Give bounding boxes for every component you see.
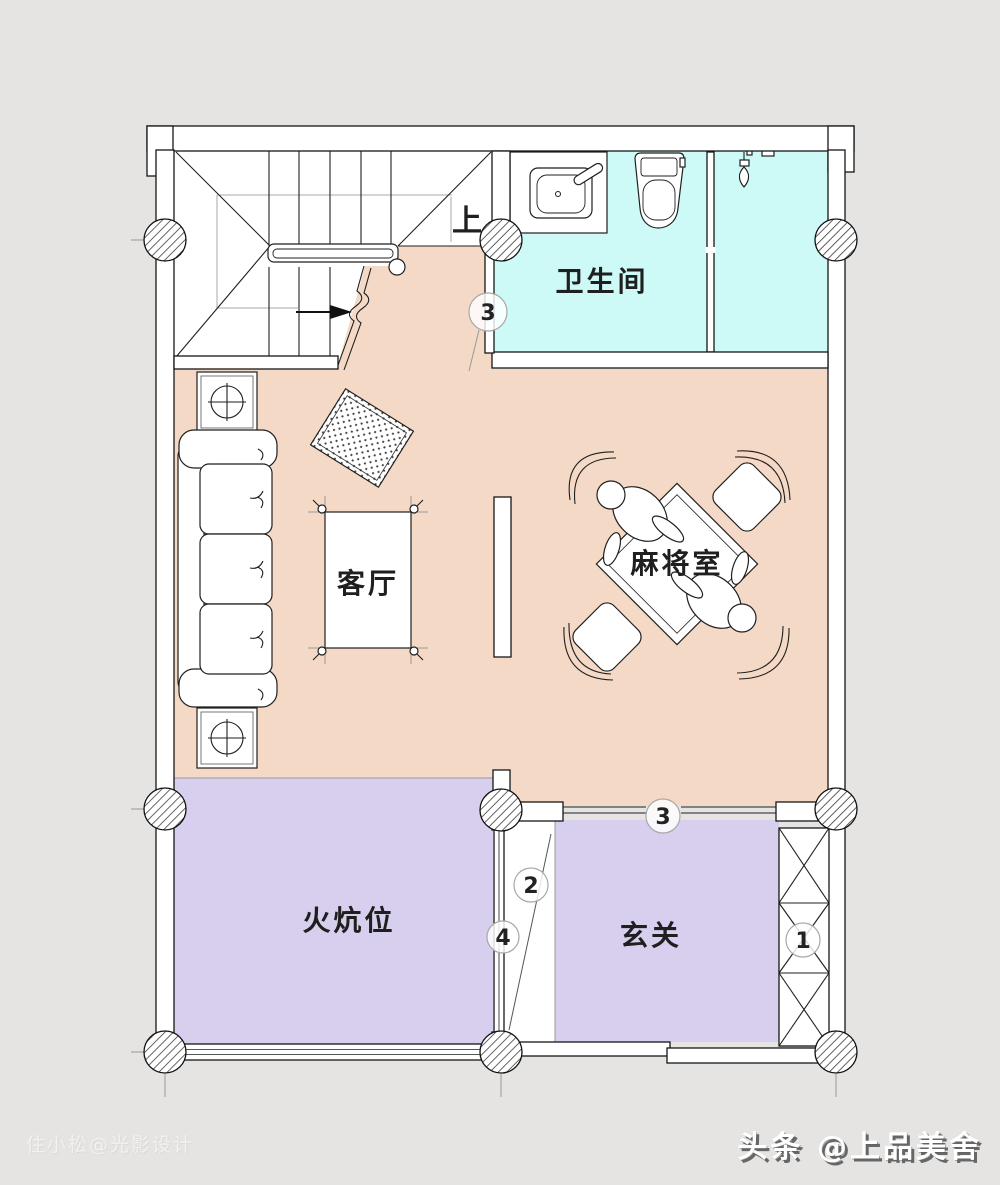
wall-living-divider bbox=[494, 497, 511, 657]
svg-text:3: 3 bbox=[480, 301, 495, 326]
svg-text:2: 2 bbox=[523, 874, 538, 899]
column bbox=[144, 1031, 186, 1073]
wall-right bbox=[828, 150, 845, 1066]
svg-text:1: 1 bbox=[795, 929, 810, 954]
marker-corridor-lower: 4 bbox=[487, 921, 519, 953]
wall-top bbox=[147, 126, 854, 151]
label-entry: 玄关 bbox=[620, 919, 682, 952]
label-living: 客厅 bbox=[337, 567, 399, 600]
wall-entry-bottom-a bbox=[503, 1042, 670, 1056]
column bbox=[815, 1031, 857, 1073]
marker-corridor-upper: 2 bbox=[514, 868, 548, 902]
side-table-top bbox=[197, 372, 257, 432]
column bbox=[144, 788, 186, 830]
column bbox=[480, 1031, 522, 1073]
svg-text:4: 4 bbox=[495, 926, 510, 951]
sofa bbox=[178, 430, 277, 707]
side-table-bottom bbox=[197, 708, 257, 768]
watermark-designer: 住小松@光影设计 bbox=[26, 1130, 194, 1157]
marker-entry-cabinet: 1 bbox=[786, 923, 820, 957]
column bbox=[480, 219, 522, 261]
label-bathroom: 卫生间 bbox=[555, 265, 648, 298]
wall-bathroom-bottom bbox=[492, 352, 828, 368]
column bbox=[480, 789, 522, 831]
wall-stub-entry-left bbox=[519, 802, 563, 821]
column bbox=[144, 219, 186, 261]
stair-railing bbox=[268, 244, 398, 262]
svg-text:3: 3 bbox=[655, 805, 670, 830]
floor-plan-svg: 上 bbox=[0, 0, 1000, 1185]
stair-newel bbox=[389, 259, 405, 275]
watermark-publisher: 头条 @上品美舍 bbox=[738, 1122, 982, 1166]
wall-left bbox=[156, 150, 174, 1066]
wall-entry-bottom-b bbox=[667, 1048, 835, 1063]
wall-stair-bottom bbox=[174, 356, 338, 369]
column bbox=[815, 788, 857, 830]
marker-bathroom-door: 3 bbox=[469, 293, 507, 331]
stair-up-label: 上 bbox=[452, 204, 482, 239]
marker-entry-top-window: 3 bbox=[646, 799, 680, 833]
label-kang: 火炕位 bbox=[302, 904, 395, 937]
window-kang-bottom bbox=[172, 1044, 494, 1060]
label-mahjong: 麻将室 bbox=[630, 547, 723, 580]
floor-plan-image: 上 bbox=[0, 0, 1000, 1185]
wall-stub-entry-right bbox=[776, 802, 818, 821]
column bbox=[815, 219, 857, 261]
